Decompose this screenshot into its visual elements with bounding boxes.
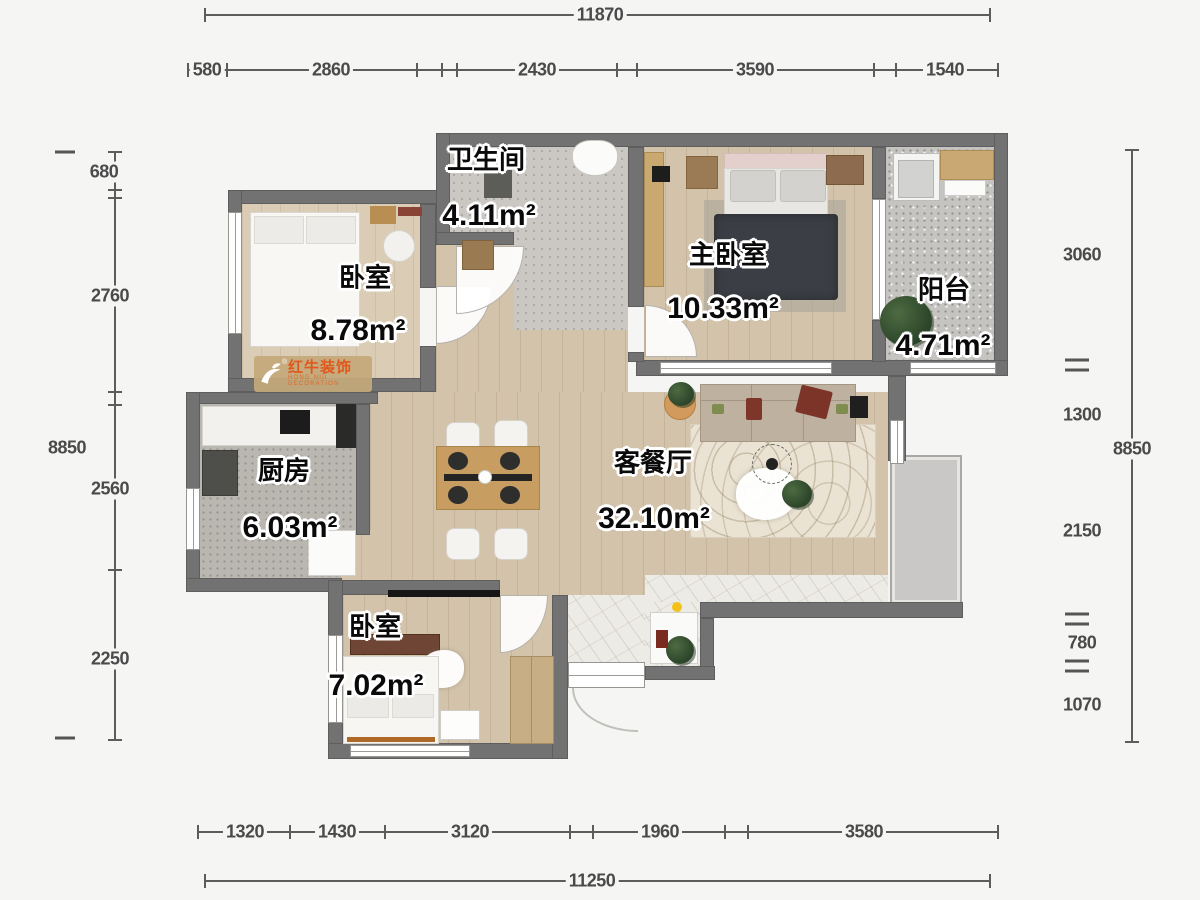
label-kitchen-area: 6.03m²: [242, 511, 337, 545]
cooktop: [280, 410, 310, 434]
centerpiece: [478, 470, 492, 484]
label-living-area: 32.10m²: [598, 502, 710, 536]
tick: [1125, 741, 1139, 743]
pet-mat: [826, 155, 864, 185]
label-bedroom1-area: 8.78m²: [310, 314, 405, 348]
tick: [108, 404, 122, 406]
dim-top-0: 580: [190, 60, 225, 81]
wall-living-bottom: [700, 602, 963, 618]
label-bedroom2-name: 卧室: [349, 607, 401, 644]
tick: [1065, 369, 1089, 372]
label-balcony-name: 阳台: [918, 270, 970, 307]
wall-bedroom1-right-a: [420, 204, 436, 288]
tick: [747, 825, 749, 839]
registered-mark: ®: [282, 359, 287, 366]
tick: [895, 63, 897, 77]
label-bedroom1-name: 卧室: [339, 258, 391, 295]
dim-left-0: 680: [87, 162, 122, 183]
dim-left-3: 2250: [88, 649, 132, 670]
wall-bedroom1-right-b: [420, 346, 436, 392]
label-kitchen-name: 厨房: [258, 451, 310, 488]
tick: [1065, 623, 1089, 626]
dim-top-4: 1540: [923, 60, 967, 81]
floor-bathroom-ext: [514, 245, 628, 330]
green-cushion: [712, 404, 724, 414]
nightstand: [440, 710, 480, 740]
green-cushion: [836, 404, 848, 414]
dim-bottom-1: 1430: [315, 822, 359, 843]
tick: [441, 63, 443, 77]
label-bathroom-area: 4.11m²: [442, 199, 535, 233]
pillow: [780, 170, 826, 202]
dim-right-1: 1300: [1060, 405, 1104, 426]
shelf-item: [398, 207, 422, 216]
kitchen-tall-cabinet: [336, 404, 356, 448]
dim-left-2: 2560: [88, 479, 132, 500]
tick: [108, 151, 122, 153]
wall-kitchen-top: [186, 392, 378, 404]
tick: [873, 63, 875, 77]
tick: [569, 825, 571, 839]
window-living: [890, 420, 904, 464]
label-bedroom2-area: 7.02m²: [328, 669, 423, 703]
tv-living: [388, 590, 500, 597]
pillow: [730, 170, 776, 202]
tick: [989, 8, 991, 22]
tv-master: [652, 166, 670, 182]
label-living-name: 客餐厅: [614, 443, 692, 480]
ac-platform: [890, 455, 962, 605]
tick: [108, 739, 122, 741]
tick: [204, 8, 206, 22]
bed-foot-runner: [347, 737, 435, 742]
tick: [197, 825, 199, 839]
tick: [1065, 660, 1089, 663]
red-pillow: [746, 398, 762, 420]
dim-top-2: 2430: [515, 60, 559, 81]
dining-chair: [494, 528, 528, 560]
dim-bottom-2: 3120: [448, 822, 492, 843]
tick: [108, 189, 122, 191]
black-chair: [850, 396, 868, 418]
wall-balcony-right: [994, 133, 1008, 376]
dim-bottom-0: 1320: [223, 822, 267, 843]
entry-plant: [666, 636, 694, 664]
balcony-counter: [940, 150, 994, 180]
dim-left-1: 2760: [88, 286, 132, 307]
dim-top-total: 11870: [574, 5, 627, 26]
tick: [989, 874, 991, 888]
dim-right-4: 1070: [1060, 695, 1104, 716]
tick: [108, 197, 122, 199]
floor-entry-corridor: [568, 595, 645, 666]
tick: [384, 825, 386, 839]
kitchen-sink: [202, 450, 238, 496]
entry-decor: [656, 630, 668, 648]
tick: [1065, 359, 1089, 362]
tick: [616, 63, 618, 77]
label-balcony-area: 4.71m²: [895, 329, 990, 363]
shelf-item: [370, 206, 396, 224]
place-setting: [500, 452, 520, 470]
wall-master-left: [628, 147, 644, 307]
tick: [416, 63, 418, 77]
tick: [636, 63, 638, 77]
tick: [108, 391, 122, 393]
tick: [997, 825, 999, 839]
place-setting: [448, 486, 468, 504]
vanity: [462, 240, 494, 270]
coffee-table: [766, 458, 778, 470]
tick: [55, 737, 75, 740]
watermark-brand: 红牛装饰: [288, 361, 368, 375]
tick: [724, 825, 726, 839]
tick: [1125, 149, 1139, 151]
tick: [1065, 613, 1089, 616]
window-kitchen: [186, 488, 200, 550]
label-master-area: 10.33m²: [667, 292, 779, 326]
brand-watermark: ® 红牛装饰 HONG NIU DECORATION: [254, 356, 372, 392]
tick: [226, 63, 228, 77]
plant: [782, 480, 812, 508]
dim-bottom-4: 3580: [842, 822, 886, 843]
bull-logo-icon: [258, 361, 284, 387]
dim-top-1: 2860: [309, 60, 353, 81]
wall-kitchen-right: [356, 404, 370, 535]
master-desk: [686, 156, 718, 189]
wall-bedroom1-top: [228, 190, 450, 204]
dim-right-2: 2150: [1060, 521, 1104, 542]
wall-master-left-stub: [628, 352, 644, 362]
label-bathroom-name: 卫生间: [447, 140, 525, 177]
wall-kitchen-bottom: [186, 578, 342, 592]
plant: [668, 382, 694, 406]
sofa-back-line: [700, 400, 856, 401]
place-setting: [500, 486, 520, 504]
entry-door-swing-arc: [572, 688, 638, 732]
washer-door: [898, 160, 934, 198]
floor-entry-strip: [645, 575, 888, 603]
balcony-sink: [944, 180, 986, 196]
wall-bedroom2-right: [552, 595, 568, 759]
tick: [204, 874, 206, 888]
dim-right-0: 3060: [1060, 245, 1104, 266]
tick: [456, 63, 458, 77]
dim-left-total: 8850: [45, 438, 89, 459]
tick: [289, 825, 291, 839]
tick: [55, 151, 75, 154]
dining-chair: [446, 528, 480, 560]
watermark-subtext: HONG NIU DECORATION: [288, 375, 368, 387]
entry-door-frame: [568, 662, 645, 688]
dim-bottom-3: 1960: [638, 822, 682, 843]
wall-divider-top: [872, 147, 886, 199]
floor-lamp: [672, 602, 682, 612]
kitchen-counter: [202, 406, 354, 446]
dim-right-3: 780: [1065, 633, 1100, 654]
window-balcony-door: [872, 199, 886, 320]
place-setting: [448, 452, 468, 470]
master-headboard: [724, 153, 828, 169]
window-master: [660, 362, 832, 374]
tick: [1065, 670, 1089, 673]
tick: [108, 569, 122, 571]
dim-right-total: 8850: [1110, 439, 1154, 460]
pillow: [254, 216, 304, 244]
tick: [187, 63, 189, 77]
window-bedroom1: [228, 212, 242, 334]
toilet: [572, 140, 618, 176]
label-master-name: 主卧室: [689, 235, 767, 272]
window-balcony: [910, 362, 996, 374]
wall-nook-bottom: [645, 666, 715, 680]
wardrobe-bedroom2: [510, 656, 554, 744]
pillow: [306, 216, 356, 244]
floorplan-canvas: 11870 580 2860 2430 3590 1540 680 2760 2…: [0, 0, 1200, 900]
tick: [592, 825, 594, 839]
tick: [997, 63, 999, 77]
window-bedroom2-bottom: [350, 745, 470, 757]
dim-bottom-total: 11250: [566, 871, 619, 892]
wardrobe-line: [531, 656, 532, 744]
dim-top-3: 3590: [733, 60, 777, 81]
